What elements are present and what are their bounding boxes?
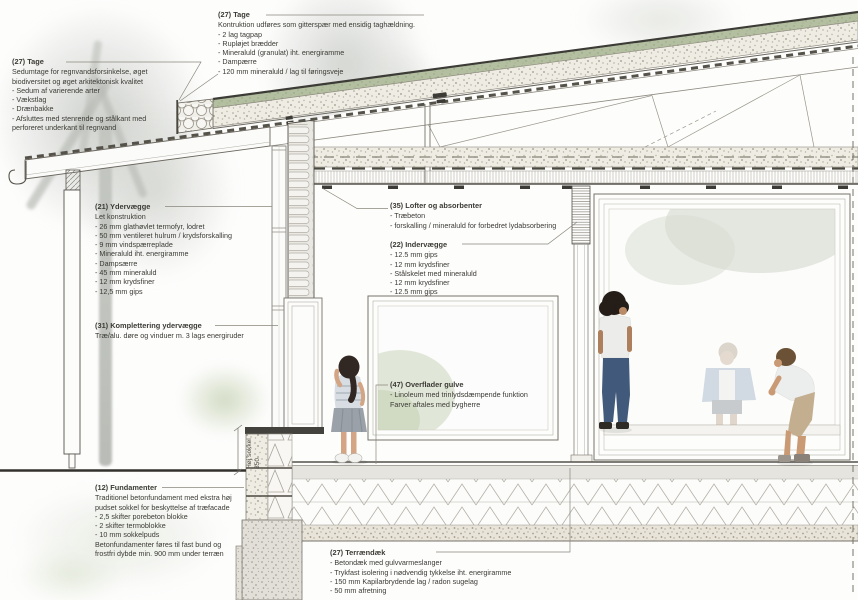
annotation-title: (22) Indervægge: [390, 240, 560, 249]
annotation-lofter: (35) Lofter og absorbenter - Træbeton - …: [390, 201, 625, 230]
annotation-title: (12) Fundamenter: [95, 483, 285, 492]
annotation-body: Traditionel betonfundament med ekstra hø…: [95, 493, 285, 558]
annotation-title: (27) Terrændæk: [330, 548, 575, 557]
dimension-ticks: [234, 425, 242, 475]
annotation-title: (35) Lofter og absorbenter: [390, 201, 625, 210]
window-panel: [284, 298, 322, 432]
annotation-body: Sedumtage for regnvandsforsinkelse, øget…: [12, 67, 207, 132]
annotation-tage-sedum: (27) Tage Sedumtage for regnvandsforsink…: [12, 57, 207, 132]
annotation-tage-construction: (27) Tage Kontruktion udføres som gitter…: [218, 10, 440, 76]
annotation-title: (27) Tage: [218, 10, 440, 19]
annotation-body: - 12.5 mm gips - 12 mm krydsfiner - Stål…: [390, 250, 560, 296]
annotation-body: Træ/alu. døre og vinduer m. 3 lags energ…: [95, 331, 295, 340]
annotation-body: Let konstruktion - 26 mm glathøvlet term…: [95, 212, 280, 296]
gutter: [9, 161, 26, 184]
annotation-title: (31) Komplettering ydervægge: [95, 321, 295, 330]
right-window: [594, 177, 855, 460]
annotation-body: - Træbeton - forskalling / mineraluld fo…: [390, 211, 625, 230]
annotation-ydervaegge: (21) Ydervægge Let konstruktion - 26 mm …: [95, 202, 280, 296]
dimension-label: Høj sokkel: [246, 438, 254, 469]
sill-band: [245, 427, 324, 434]
annotation-title: (27) Tage: [12, 57, 207, 66]
middle-window: [340, 296, 558, 450]
annotation-overflader: (47) Overflader gulve - Linoleum med tri…: [390, 380, 590, 409]
floor-assembly: [292, 462, 858, 541]
annotation-indervaegge: (22) Indervægge - 12.5 mm gips - 12 mm k…: [390, 240, 560, 297]
dimension-value: 350: [254, 438, 262, 469]
annotation-komplettering: (31) Komplettering ydervægge Træ/alu. dø…: [95, 321, 295, 341]
annotation-body: Kontruktion udføres som gitterspær med e…: [218, 20, 440, 76]
dimension-hoej-sokkel: Høj sokkel 350: [246, 438, 262, 469]
eave-column: [64, 170, 80, 468]
annotation-title: (47) Overflader gulve: [390, 380, 590, 389]
annotation-fundamenter: (12) Fundamenter Traditionel betonfundam…: [95, 483, 285, 558]
annotation-body: - Betondæk med gulvvarmeslanger - Trykfa…: [330, 558, 575, 595]
annotation-body: - Linoleum med trinlydsdæmpende funktion…: [390, 390, 590, 409]
architectural-section-drawing: (27) Tage Kontruktion udføres som gitter…: [0, 0, 858, 600]
annotation-title: (21) Ydervægge: [95, 202, 280, 211]
annotation-terraendaek: (27) Terrændæk - Betondæk med gulvvarmes…: [330, 548, 575, 595]
ceiling-assembly: [292, 147, 858, 189]
eave-overhang: [9, 127, 270, 184]
